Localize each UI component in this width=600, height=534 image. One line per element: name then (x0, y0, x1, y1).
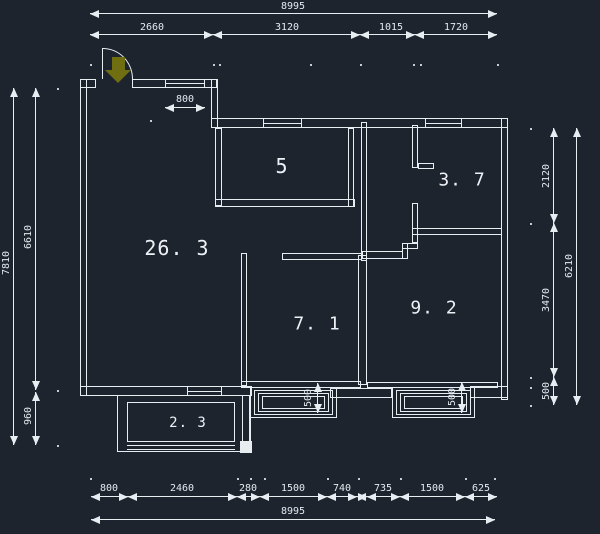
dimension-arrow (10, 436, 18, 445)
room5-left-wall (215, 128, 222, 206)
dimension-arrow (360, 31, 369, 39)
dimension-arrow (367, 493, 376, 501)
dim-right-overall-line (576, 128, 577, 405)
room-label-9-2: 9. 2 (410, 298, 457, 319)
dimension-arrow (251, 493, 260, 501)
dimension-arrow (550, 128, 558, 137)
reference-dot (327, 478, 329, 480)
reference-dot (90, 478, 92, 480)
floor-plan-drawing: 53. 726. 37. 19. 22. 3899526603120101517… (0, 0, 600, 534)
reference-dot (494, 478, 496, 480)
partition-71-92 (358, 255, 367, 385)
dimension-label: 735 (374, 484, 392, 494)
top-wall-right (211, 118, 508, 128)
window-top-left-pane (166, 83, 204, 84)
dimension-label: 740 (333, 484, 351, 494)
dimension-arrow (204, 31, 213, 39)
dimension-arrow (488, 10, 497, 18)
dimension-arrow (10, 88, 18, 97)
dimension-arrow (119, 493, 128, 501)
top-wall-left-a (80, 79, 96, 88)
balcony-glazing-line (127, 449, 235, 450)
dimension-arrow (32, 381, 40, 390)
shaft-left-wall (361, 122, 367, 261)
dimension-arrow (456, 493, 465, 501)
dimension-arrow (32, 392, 40, 401)
room92-jog-wall-h (402, 243, 418, 249)
reference-dot (420, 64, 422, 66)
cad-viewport[interactable]: 53. 726. 37. 19. 22. 3899526603120101517… (0, 0, 600, 534)
reference-dot (213, 64, 215, 66)
reference-dot (250, 478, 252, 480)
dimension-label: 2120 (542, 164, 552, 188)
dimension-label: 1500 (281, 484, 305, 494)
room-label-26-3: 26. 3 (144, 236, 209, 260)
dimension-arrow (406, 31, 415, 39)
dimension-label: 8995 (281, 2, 305, 12)
dimension-arrow (165, 104, 174, 112)
dim-left-overall-line (13, 88, 14, 445)
reference-dot (413, 64, 415, 66)
dimension-label: 7810 (2, 251, 12, 275)
dimension-arrow (351, 31, 360, 39)
reference-dot (310, 64, 312, 66)
dimension-arrow (400, 493, 409, 501)
dimension-label: 3470 (542, 288, 552, 312)
dimension-label: 3120 (275, 23, 299, 33)
dimension-arrow (550, 214, 558, 223)
reference-dot (497, 64, 499, 66)
dimension-arrow (91, 516, 100, 524)
reference-dot (530, 387, 532, 389)
dimension-label: 800 (176, 95, 194, 105)
dimension-arrow (550, 368, 558, 377)
room92-top-wall (362, 251, 403, 259)
reference-dot (57, 390, 59, 392)
dimension-arrow (128, 493, 137, 501)
dim-right-2120-line (553, 128, 554, 223)
dimension-label: 625 (472, 484, 490, 494)
dim-bottom-chain-line (91, 496, 497, 497)
dimension-arrow (213, 31, 222, 39)
reference-dot (360, 64, 362, 66)
dimension-arrow (550, 223, 558, 232)
dimension-label: 800 (100, 484, 118, 494)
dimension-arrow (237, 493, 246, 501)
left-wall (80, 79, 87, 396)
dimension-arrow (348, 493, 357, 501)
dimension-arrow (32, 436, 40, 445)
dimension-arrow (91, 493, 100, 501)
entry-arrow-icon (112, 57, 125, 70)
reference-dot (530, 128, 532, 130)
dim-top-overall-line (90, 13, 497, 14)
reference-dot (530, 223, 532, 225)
right-wall (501, 118, 508, 400)
dimension-arrow (318, 493, 327, 501)
dimension-arrow (488, 31, 497, 39)
dimension-arrow (415, 31, 424, 39)
dimension-arrow (90, 10, 99, 18)
room71-left-wall (241, 253, 247, 386)
reference-dot (237, 478, 239, 480)
room-label-5: 5 (275, 154, 288, 178)
dimension-arrow (458, 404, 466, 413)
room-label-3-7: 3. 7 (438, 170, 485, 191)
reference-dot (530, 377, 532, 379)
dimension-label: 1720 (444, 23, 468, 33)
room37-door-stub (418, 163, 434, 169)
reference-dot (150, 120, 152, 122)
dimension-arrow (465, 493, 474, 501)
dimension-arrow (573, 128, 581, 137)
room71-top-wall (282, 253, 362, 260)
dimension-label: 960 (24, 407, 34, 425)
reference-dot (530, 405, 532, 407)
dimension-arrow (314, 383, 322, 392)
dimension-label: 8995 (281, 507, 305, 517)
dimension-label: 1500 (420, 484, 444, 494)
dim-bottom-overall-line (91, 519, 495, 520)
dimension-arrow (391, 493, 400, 501)
reference-dot (264, 478, 266, 480)
window-bottom-left-pane (188, 391, 221, 392)
reference-dot (219, 64, 221, 66)
room-label-2-3: 2. 3 (169, 415, 207, 431)
room37-left-wall-lower (412, 203, 418, 243)
dimension-arrow (196, 104, 205, 112)
dimension-arrow (90, 31, 99, 39)
dim-left-6610-line (35, 88, 36, 390)
dimension-arrow (260, 493, 269, 501)
reference-dot (358, 478, 360, 480)
reference-dot (57, 445, 59, 447)
dimension-arrow (458, 382, 466, 391)
dimension-label: 2460 (170, 484, 194, 494)
room5-bottom-wall (215, 199, 355, 207)
reference-dot (57, 88, 59, 90)
dimension-label: 6610 (24, 225, 34, 249)
dimension-label: 280 (239, 484, 257, 494)
dimension-arrow (488, 493, 497, 501)
room-label-7-1: 7. 1 (293, 314, 340, 335)
bottom-wall-mid (330, 388, 392, 398)
reference-dot (465, 478, 467, 480)
dimension-label: 2660 (140, 23, 164, 33)
dimension-arrow (486, 516, 495, 524)
dimension-label: 500 (542, 382, 552, 400)
dim-top-chain-line (90, 34, 497, 35)
dim-right-3470-line (553, 223, 554, 377)
entry-arrow-icon (105, 70, 131, 83)
dimension-label: 6210 (565, 254, 575, 278)
dimension-arrow (228, 493, 237, 501)
dimension-arrow (327, 493, 336, 501)
dimension-label: 500 (448, 388, 458, 406)
balcony-glazing-line (127, 445, 235, 446)
room37-left-wall-upper (412, 125, 418, 168)
dimension-label: 500 (304, 389, 314, 407)
dimension-arrow (573, 396, 581, 405)
room37-bottom-wall (412, 228, 502, 235)
room5-right-wall (348, 128, 354, 207)
window-room37-pane (426, 123, 461, 124)
reference-dot (90, 64, 92, 66)
window-room5-pane (264, 123, 301, 124)
dimension-arrow (32, 88, 40, 97)
dimension-label: 1015 (379, 23, 403, 33)
dimension-arrow (358, 493, 367, 501)
reference-dot (400, 478, 402, 480)
dimension-arrow (314, 404, 322, 413)
